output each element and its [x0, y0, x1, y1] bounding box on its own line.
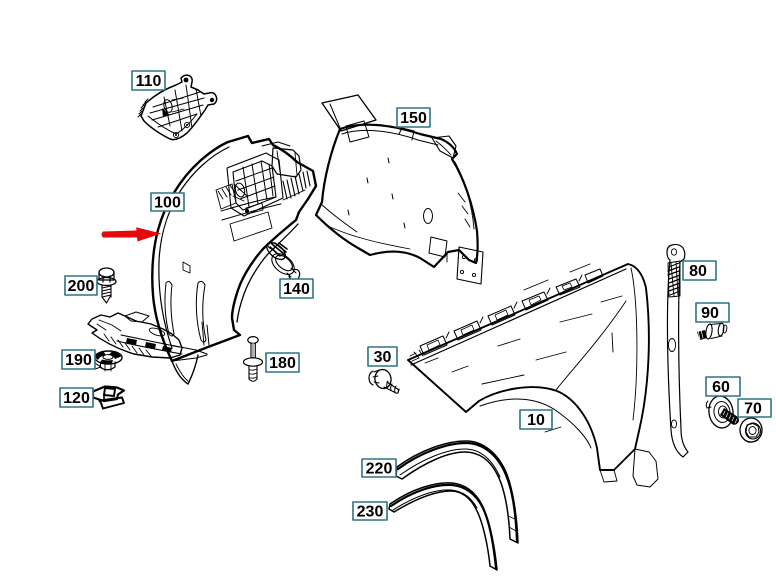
svg-text:220: 220 [366, 461, 393, 478]
svg-text:60: 60 [712, 379, 730, 396]
svg-text:120: 120 [63, 390, 90, 407]
svg-text:190: 190 [65, 352, 92, 369]
svg-text:230: 230 [357, 504, 384, 521]
svg-text:70: 70 [744, 401, 762, 418]
svg-text:10: 10 [527, 412, 545, 429]
svg-text:100: 100 [154, 195, 181, 212]
svg-text:200: 200 [68, 278, 95, 295]
svg-text:140: 140 [283, 281, 310, 298]
svg-text:180: 180 [269, 355, 296, 372]
svg-text:30: 30 [374, 349, 392, 366]
svg-text:80: 80 [689, 263, 707, 280]
svg-text:110: 110 [136, 73, 162, 90]
svg-text:90: 90 [701, 305, 719, 322]
svg-text:150: 150 [400, 110, 427, 127]
